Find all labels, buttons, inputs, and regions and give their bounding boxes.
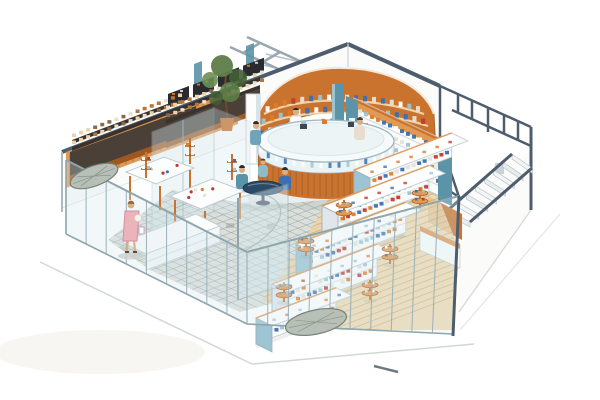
store-rendering	[0, 0, 600, 400]
store-rendering-svg	[0, 0, 600, 400]
spinner-display	[336, 200, 352, 223]
foreground-wash	[0, 330, 205, 374]
